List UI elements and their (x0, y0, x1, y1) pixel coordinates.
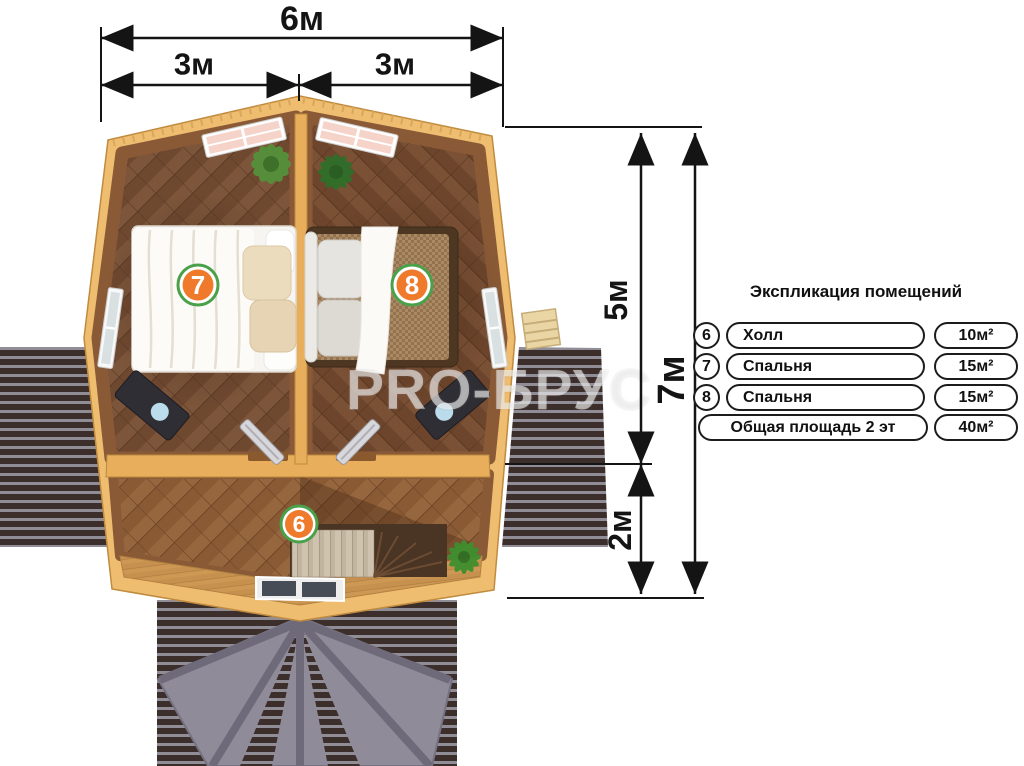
dim-label-2m: 2м (604, 509, 636, 550)
room-legend: Экспликация помещений 6 Холл 10м² 7 Спал… (688, 282, 1024, 442)
legend-number-badge: 7 (693, 353, 720, 380)
legend-total-label: Общая площадь 2 эт (698, 414, 928, 441)
badge-7: 7 (178, 265, 218, 305)
legend-room-name: Спальня (726, 384, 925, 411)
pillow (318, 300, 364, 356)
balcony-window (256, 577, 344, 601)
legend-row-bedroom-7: 7 Спальня 15м² (688, 353, 1024, 380)
roof-ledge (522, 309, 561, 349)
badge-8-number: 8 (405, 270, 419, 300)
dim-label-6m: 6м (280, 2, 324, 36)
legend-room-name: Спальня (726, 353, 925, 380)
legend-total-area: 40м² (934, 414, 1018, 441)
legend-room-area: 15м² (934, 353, 1018, 380)
badge-6: 6 (281, 506, 317, 542)
legend-row-hall: 6 Холл 10м² (688, 322, 1024, 349)
dim-label-3m-right: 3м (375, 49, 415, 80)
watermark: PRO-БРУС (346, 357, 651, 423)
legend-room-area: 15м² (934, 384, 1018, 411)
badge-8: 8 (392, 265, 432, 305)
bed-8 (305, 227, 458, 374)
legend-row-total: Общая площадь 2 эт 40м² (688, 414, 1024, 441)
dim-label-5m: 5м (600, 279, 632, 320)
dim-label-3m-left: 3м (174, 49, 214, 80)
dim-label-7m: 7м (653, 355, 691, 404)
headboard (305, 232, 317, 362)
pillow (243, 246, 291, 300)
legend-row-bedroom-8: 8 Спальня 15м² (688, 384, 1024, 411)
pillow (318, 240, 364, 298)
legend-number-badge: 8 (693, 384, 720, 411)
legend-room-name: Холл (726, 322, 925, 349)
legend-number-badge: 6 (693, 322, 720, 349)
legend-title: Экспликация помещений (688, 282, 1024, 302)
legend-room-area: 10м² (934, 322, 1018, 349)
badge-6-number: 6 (293, 511, 306, 537)
floor-plan-page: 7 8 6 PRO-БРУС 6м 3м 3м 5м 2м 7м Эксплик… (0, 0, 1024, 766)
badge-7-number: 7 (191, 270, 205, 300)
pillow (250, 300, 296, 352)
